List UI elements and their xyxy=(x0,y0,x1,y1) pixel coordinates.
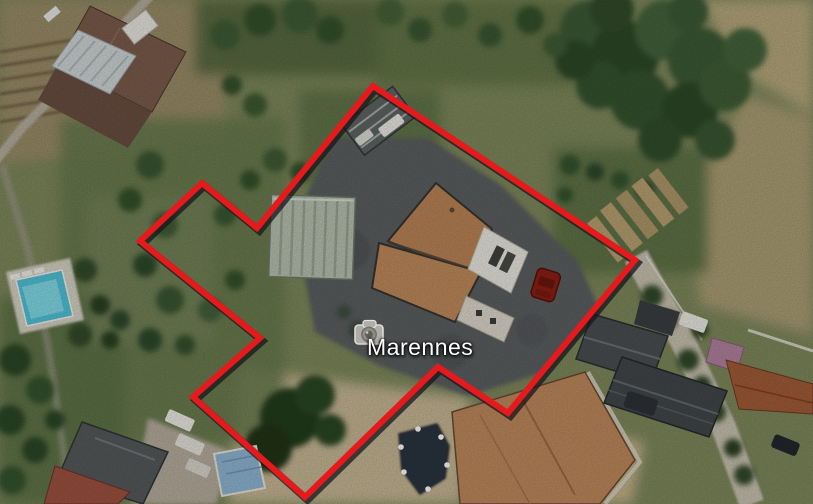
place-label[interactable]: Marennes xyxy=(367,334,473,361)
satellite-map[interactable]: Marennes xyxy=(0,0,813,504)
grain-overlay xyxy=(0,0,813,504)
satellite-imagery xyxy=(0,0,813,504)
